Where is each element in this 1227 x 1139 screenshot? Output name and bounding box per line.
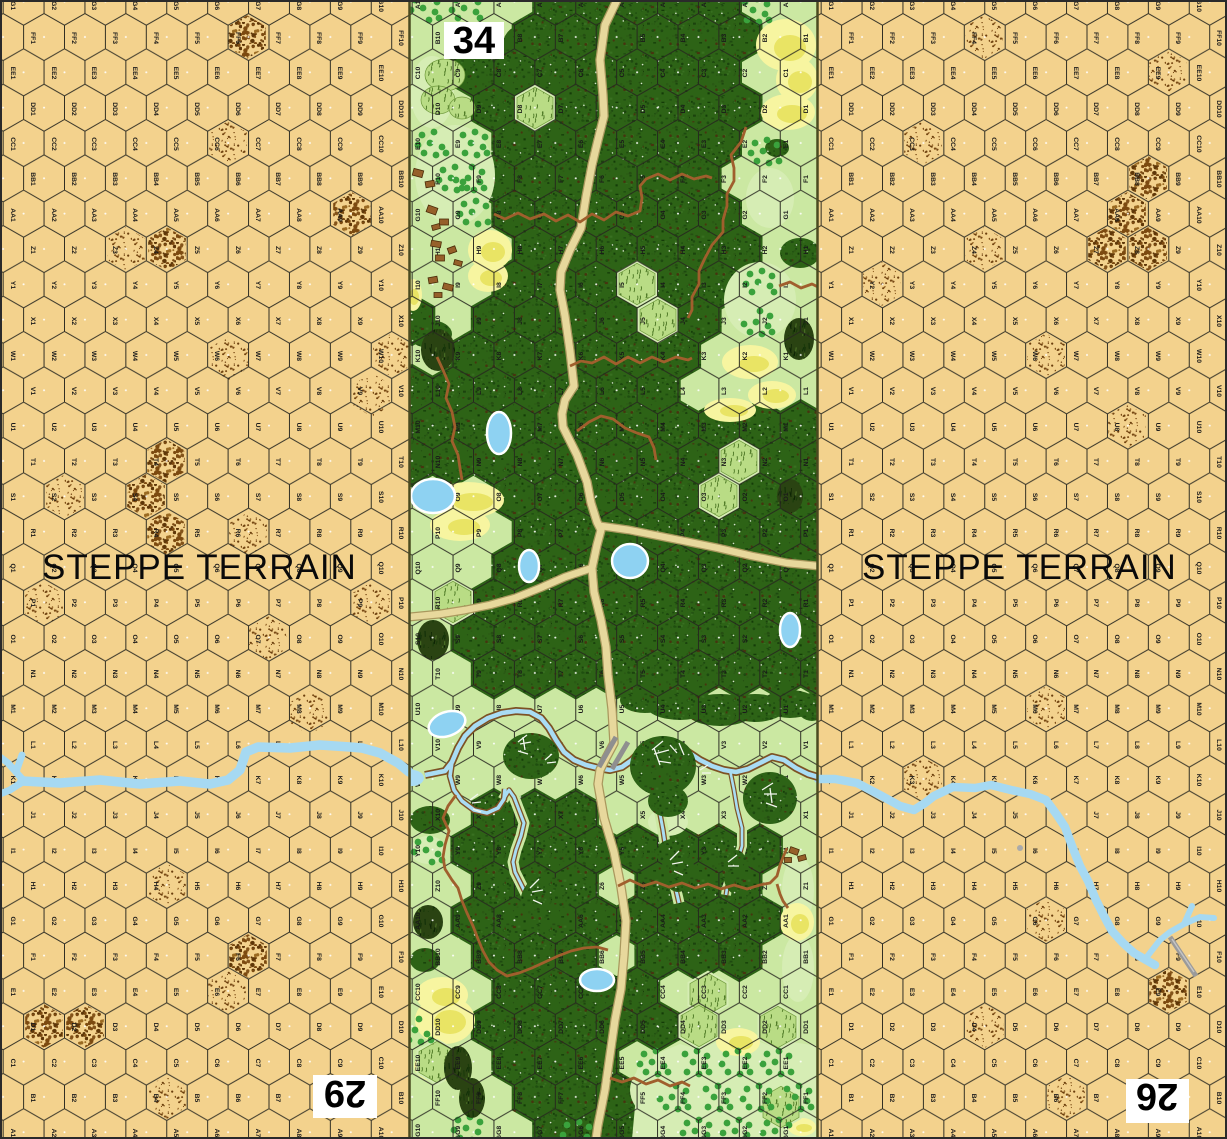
svg-text:J9: J9 [476,317,483,325]
svg-text:E7: E7 [1072,988,1079,997]
svg-text:K7: K7 [537,351,544,360]
svg-text:BB9: BB9 [356,172,363,186]
svg-text:R4: R4 [680,598,687,607]
svg-text:O3: O3 [908,634,915,643]
svg-text:W1: W1 [827,351,834,361]
svg-text:E9: E9 [336,988,343,997]
svg-text:Y5: Y5 [619,847,626,856]
svg-text:29: 29 [324,1072,366,1114]
svg-text:D7: D7 [274,1023,281,1032]
svg-text:G10: G10 [377,915,384,928]
svg-text:W7: W7 [254,351,261,361]
svg-text:Y7: Y7 [537,847,544,856]
svg-text:W3: W3 [908,351,915,361]
svg-text:S7: S7 [537,635,544,644]
svg-text:Z6: Z6 [1052,246,1059,254]
svg-text:K9: K9 [336,776,343,785]
svg-text:BB1: BB1 [803,950,810,964]
svg-text:Q10: Q10 [1195,562,1202,575]
svg-text:M8: M8 [1113,704,1120,714]
svg-text:J4: J4 [680,317,687,325]
svg-text:O7: O7 [537,492,544,501]
svg-text:L7: L7 [1092,741,1099,749]
svg-text:O6: O6 [213,634,220,643]
svg-text:CC5: CC5 [172,137,179,151]
svg-text:C5: C5 [990,1059,997,1068]
svg-text:S5: S5 [172,493,179,502]
svg-text:Z10: Z10 [397,244,404,256]
svg-text:O5: O5 [619,492,626,501]
svg-text:N8: N8 [1133,670,1140,679]
svg-text:EE9: EE9 [455,1056,462,1069]
svg-text:N3: N3 [111,670,118,679]
svg-text:U4: U4 [131,423,138,432]
svg-text:V6: V6 [1052,387,1059,396]
svg-text:N7: N7 [1092,670,1099,679]
svg-text:M5: M5 [990,704,997,714]
svg-text:S1: S1 [827,493,834,502]
svg-text:A2: A2 [868,1129,875,1138]
svg-text:Y6: Y6 [1031,281,1038,290]
svg-text:B2: B2 [70,1094,77,1103]
svg-text:X3: X3 [111,317,118,326]
svg-text:T8: T8 [517,670,524,678]
svg-text:R9: R9 [1174,529,1181,538]
svg-text:G7: G7 [1072,916,1079,925]
svg-text:S4: S4 [660,635,667,644]
svg-text:Y7: Y7 [254,281,261,290]
svg-text:H1: H1 [847,882,854,891]
svg-text:C3: C3 [701,68,708,77]
svg-text:P7: P7 [1092,599,1099,608]
svg-text:O10: O10 [377,633,384,646]
svg-text:W9: W9 [1154,351,1161,361]
svg-text:M10: M10 [415,420,422,433]
svg-text:R10: R10 [1215,527,1222,540]
svg-text:U3: U3 [701,704,708,713]
svg-text:Z7: Z7 [1092,246,1099,254]
svg-text:U3: U3 [90,423,97,432]
svg-text:DD7: DD7 [274,102,281,116]
svg-text:G3: G3 [701,210,708,219]
svg-text:C4: C4 [949,1059,956,1068]
svg-text:AA1: AA1 [9,208,16,222]
svg-text:R8: R8 [315,529,322,538]
svg-text:L3: L3 [721,387,728,395]
svg-text:E3: E3 [701,140,708,149]
svg-text:Q3: Q3 [701,563,708,572]
svg-text:G1: G1 [827,916,834,925]
svg-text:Z7: Z7 [274,246,281,254]
svg-text:FF8: FF8 [517,1092,524,1104]
svg-text:E5: E5 [172,988,179,997]
svg-text:J7: J7 [1092,811,1099,819]
svg-text:I3: I3 [90,848,97,854]
svg-text:I3: I3 [908,848,915,854]
svg-text:H5: H5 [640,245,647,254]
svg-text:P6: P6 [234,599,241,608]
svg-text:DD4: DD4 [152,102,159,116]
svg-text:W6: W6 [578,775,585,785]
svg-text:N6: N6 [599,457,606,466]
svg-text:M7: M7 [537,422,544,432]
svg-text:DD5: DD5 [193,102,200,116]
svg-text:X1: X1 [29,317,36,326]
svg-text:T10: T10 [397,456,404,468]
svg-text:L9: L9 [1174,741,1181,749]
svg-text:EE1: EE1 [9,67,16,80]
svg-text:J2: J2 [70,811,77,819]
svg-text:AA6: AA6 [578,914,585,928]
svg-text:Y2: Y2 [50,281,57,290]
svg-text:E1: E1 [9,988,16,997]
svg-text:R1: R1 [803,598,810,607]
svg-text:U2: U2 [50,423,57,432]
svg-text:R5: R5 [193,529,200,538]
svg-text:H10: H10 [397,880,404,893]
svg-text:CC3: CC3 [90,137,97,151]
svg-text:J8: J8 [315,811,322,819]
svg-text:Y8: Y8 [295,281,302,290]
svg-text:S3: S3 [701,635,708,644]
svg-text:Y1: Y1 [9,281,16,290]
svg-text:DD6: DD6 [599,1020,606,1034]
svg-text:EE2: EE2 [742,1056,749,1069]
svg-text:N8: N8 [517,457,524,466]
svg-text:GG6: GG6 [578,1126,585,1139]
svg-text:V10: V10 [1215,385,1222,397]
svg-text:A1: A1 [9,1129,16,1138]
svg-text:E9: E9 [1154,988,1161,997]
svg-text:CC6: CC6 [213,137,220,151]
svg-text:T5: T5 [640,670,647,678]
svg-text:L2: L2 [888,741,895,749]
svg-text:O6: O6 [1031,634,1038,643]
svg-text:S5: S5 [619,635,626,644]
svg-text:BB1: BB1 [29,172,36,186]
svg-text:FF7: FF7 [274,32,281,44]
svg-text:D9: D9 [356,1023,363,1032]
svg-text:B6: B6 [234,1094,241,1103]
svg-text:H6: H6 [234,882,241,891]
svg-text:T5: T5 [1011,458,1018,466]
svg-text:Y8: Y8 [1113,281,1120,290]
svg-text:H8: H8 [315,882,322,891]
svg-text:EE4: EE4 [949,67,956,80]
svg-text:BB7: BB7 [274,172,281,186]
svg-text:U10: U10 [377,421,384,434]
svg-text:U1: U1 [783,704,790,713]
svg-text:J5: J5 [193,811,200,819]
svg-text:H4: H4 [152,882,159,891]
svg-text:Z6: Z6 [234,246,241,254]
svg-text:Q10: Q10 [415,561,422,574]
svg-text:F6: F6 [234,953,241,961]
svg-text:S6: S6 [578,635,585,644]
svg-text:T6: T6 [1052,458,1059,466]
svg-text:CC4: CC4 [131,137,138,151]
svg-text:I4: I4 [660,282,667,288]
svg-text:H5: H5 [193,882,200,891]
svg-text:U8: U8 [1113,423,1120,432]
svg-text:EE9: EE9 [336,67,343,80]
svg-text:S1: S1 [9,493,16,502]
svg-text:FF10: FF10 [397,30,404,46]
svg-text:L4: L4 [152,741,159,749]
svg-text:BB2: BB2 [762,950,769,964]
svg-text:AA4: AA4 [949,208,956,222]
svg-text:K6: K6 [578,351,585,360]
svg-text:V8: V8 [315,387,322,396]
svg-text:O2: O2 [742,492,749,501]
svg-text:BB5: BB5 [1011,172,1018,186]
svg-text:S7: S7 [254,493,261,502]
svg-text:E7: E7 [254,988,261,997]
svg-text:Y6: Y6 [213,281,220,290]
svg-text:Z4: Z4 [152,246,159,254]
svg-text:P1: P1 [847,599,854,608]
svg-text:F5: F5 [1011,953,1018,961]
svg-text:FF8: FF8 [315,32,322,44]
svg-text:DD10: DD10 [1215,100,1222,118]
svg-text:W8: W8 [496,775,503,785]
svg-text:Z9: Z9 [356,246,363,254]
svg-text:DD2: DD2 [70,102,77,116]
svg-text:Y2: Y2 [868,281,875,290]
svg-text:W2: W2 [868,351,875,361]
svg-text:AA8: AA8 [295,208,302,222]
svg-text:G4: G4 [660,210,667,219]
svg-text:D8: D8 [315,1023,322,1032]
svg-text:FF4: FF4 [152,32,159,44]
svg-text:T3: T3 [929,458,936,466]
svg-text:T7: T7 [558,670,565,678]
svg-text:R5: R5 [640,598,647,607]
svg-text:V2: V2 [888,387,895,396]
svg-text:D10: D10 [397,1021,404,1034]
svg-text:H3: H3 [929,882,936,891]
svg-text:DD1: DD1 [847,102,854,116]
svg-text:L4: L4 [680,387,687,395]
svg-text:M10: M10 [1195,702,1202,715]
svg-text:EE3: EE3 [90,67,97,80]
svg-text:N5: N5 [193,670,200,679]
svg-text:N1: N1 [803,457,810,466]
svg-text:Z8: Z8 [315,246,322,254]
svg-text:N1: N1 [29,670,36,679]
svg-text:T4: T4 [680,670,687,678]
svg-text:U5: U5 [990,423,997,432]
svg-text:AA5: AA5 [172,208,179,222]
svg-text:C8: C8 [1113,1059,1120,1068]
svg-text:CC10: CC10 [1195,135,1202,153]
svg-text:W4: W4 [131,351,138,361]
svg-text:O9: O9 [336,634,343,643]
svg-text:W7: W7 [1072,351,1079,361]
svg-text:R10: R10 [397,527,404,540]
svg-text:K8: K8 [1113,776,1120,785]
svg-text:L6: L6 [599,387,606,395]
svg-text:AA8: AA8 [1113,208,1120,222]
svg-text:AA6: AA6 [1031,208,1038,222]
svg-text:X10: X10 [397,315,404,327]
svg-text:FF1: FF1 [29,32,36,44]
svg-text:K10: K10 [377,774,384,787]
svg-text:W5: W5 [619,775,626,785]
svg-text:Y7: Y7 [1072,281,1079,290]
svg-text:C9: C9 [455,68,462,77]
svg-text:Y9: Y9 [336,281,343,290]
svg-text:EE10: EE10 [415,1054,422,1071]
svg-text:FF9: FF9 [356,32,363,44]
svg-text:I4: I4 [131,848,138,854]
svg-text:R2: R2 [762,598,769,607]
svg-text:E4: E4 [949,988,956,997]
svg-text:J1: J1 [847,811,854,819]
svg-text:K9: K9 [455,351,462,360]
svg-text:D4: D4 [970,1023,977,1032]
svg-text:DD3: DD3 [721,1020,728,1034]
svg-text:DD6: DD6 [1052,102,1059,116]
svg-text:GG3: GG3 [701,1126,708,1139]
svg-text:N2: N2 [888,670,895,679]
svg-text:X8: X8 [1133,317,1140,326]
svg-text:F9: F9 [476,175,483,183]
svg-text:Z10: Z10 [435,880,442,892]
svg-text:M1: M1 [783,422,790,432]
svg-text:M8: M8 [295,704,302,714]
svg-text:M5: M5 [172,704,179,714]
svg-text:S4: S4 [131,493,138,502]
svg-text:A6: A6 [213,1129,220,1138]
svg-text:A8: A8 [1113,1129,1120,1138]
svg-text:EE6: EE6 [213,67,220,80]
svg-text:H9: H9 [356,882,363,891]
svg-text:CC9: CC9 [1154,137,1161,151]
svg-text:BB9: BB9 [1174,172,1181,186]
svg-text:CC4: CC4 [949,137,956,151]
svg-text:Z9: Z9 [1174,246,1181,254]
svg-text:K8: K8 [295,776,302,785]
svg-text:O7: O7 [1072,634,1079,643]
svg-text:J2: J2 [762,317,769,325]
svg-text:B1: B1 [803,33,810,42]
svg-text:W8: W8 [295,351,302,361]
svg-text:T1: T1 [803,670,810,678]
svg-text:V7: V7 [274,387,281,396]
svg-text:Y1: Y1 [827,281,834,290]
svg-text:O8: O8 [496,492,503,501]
svg-text:FF7: FF7 [558,1092,565,1104]
svg-text:CC10: CC10 [377,135,384,153]
svg-text:N3: N3 [721,457,728,466]
svg-text:AA2: AA2 [50,208,57,222]
svg-text:L1: L1 [29,741,36,749]
svg-text:E10: E10 [377,986,384,998]
svg-text:FF9: FF9 [1174,32,1181,44]
svg-text:Z4: Z4 [970,246,977,254]
svg-text:R7: R7 [1092,529,1099,538]
svg-text:B1: B1 [847,1094,854,1103]
svg-text:E6: E6 [213,988,220,997]
svg-text:Q4: Q4 [660,563,667,572]
svg-text:V4: V4 [970,387,977,396]
svg-text:L6: L6 [234,741,241,749]
svg-text:EE6: EE6 [1031,67,1038,80]
svg-text:L3: L3 [929,741,936,749]
svg-text:V3: V3 [111,387,118,396]
svg-text:G6: G6 [213,916,220,925]
svg-text:E3: E3 [90,988,97,997]
svg-text:Z2: Z2 [888,246,895,254]
svg-text:T8: T8 [315,458,322,466]
svg-text:M10: M10 [377,702,384,715]
svg-text:AA9: AA9 [455,914,462,928]
svg-text:K1: K1 [783,351,790,360]
svg-text:G5: G5 [990,916,997,925]
svg-text:AA1: AA1 [827,208,834,222]
svg-text:O6: O6 [578,492,585,501]
svg-text:R3: R3 [721,598,728,607]
svg-text:Q2: Q2 [742,563,749,572]
svg-text:H5: H5 [1011,882,1018,891]
svg-text:A2: A2 [50,1129,57,1138]
svg-text:FF4: FF4 [680,1092,687,1104]
svg-text:EE8: EE8 [1113,67,1120,80]
svg-text:O1: O1 [9,634,16,643]
svg-text:Z9: Z9 [476,882,483,890]
svg-text:C2: C2 [50,1059,57,1068]
svg-text:J6: J6 [234,811,241,819]
svg-text:V3: V3 [721,741,728,750]
svg-text:GG7: GG7 [537,1126,544,1139]
svg-text:R4: R4 [970,529,977,538]
svg-text:D3: D3 [929,1023,936,1032]
svg-text:Y6: Y6 [578,847,585,856]
svg-text:E10: E10 [415,138,422,150]
svg-text:B3: B3 [721,33,728,42]
svg-text:O7: O7 [254,634,261,643]
svg-text:B10: B10 [435,32,442,45]
svg-text:L2: L2 [762,387,769,395]
svg-text:DD8: DD8 [315,102,322,116]
svg-text:N6: N6 [1052,670,1059,679]
svg-text:P6: P6 [1052,599,1059,608]
svg-text:W3: W3 [701,775,708,785]
svg-text:T1: T1 [847,458,854,466]
svg-text:J3: J3 [721,317,728,325]
svg-text:J4: J4 [152,811,159,819]
svg-text:H2: H2 [70,882,77,891]
svg-text:J10: J10 [435,315,442,327]
svg-text:X3: X3 [721,811,728,820]
svg-text:C10: C10 [377,1057,384,1070]
svg-text:R6: R6 [234,529,241,538]
svg-text:BB3: BB3 [111,172,118,186]
svg-text:I6: I6 [578,282,585,288]
svg-text:J3: J3 [111,811,118,819]
svg-text:J1: J1 [803,317,810,325]
svg-text:P9: P9 [356,599,363,608]
svg-text:V9: V9 [356,387,363,396]
svg-text:F1: F1 [803,175,810,183]
svg-text:BB1: BB1 [847,172,854,186]
svg-text:DD9: DD9 [476,1020,483,1034]
svg-text:B3: B3 [929,1094,936,1103]
svg-text:C1: C1 [9,1059,16,1068]
svg-text:R10: R10 [435,597,442,610]
svg-text:N6: N6 [234,670,241,679]
